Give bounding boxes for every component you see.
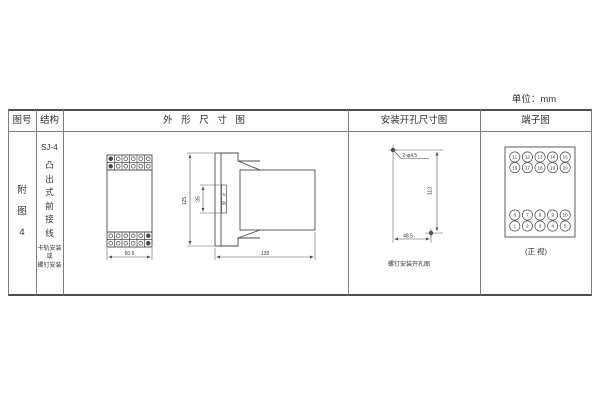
screw-dot	[146, 241, 150, 245]
terminal-number: 17	[525, 165, 531, 170]
screw-dot	[109, 164, 113, 168]
terminal-number: 6	[514, 213, 517, 218]
structure-type-char-2: 出	[36, 174, 63, 184]
structure-type-char-3: 式	[36, 187, 63, 197]
structure-type-char-4: 前	[36, 201, 63, 211]
terminal-number: 16	[512, 165, 518, 170]
terminal-number: 20	[563, 165, 569, 170]
side-top-step	[221, 153, 260, 161]
front-body	[107, 170, 152, 232]
terminal-number: 10	[563, 213, 569, 218]
rail-label-char-2: 轨	[222, 200, 226, 206]
col-header-terminal: 端子图	[480, 110, 591, 131]
front-width-dim: 60.5	[125, 251, 135, 257]
front-view: 60.5	[107, 155, 152, 260]
col-header-outline: 外 形 尺 寸 图	[63, 110, 348, 131]
rail-dim: 35	[196, 196, 202, 202]
side-bottom-step	[221, 238, 260, 246]
col-header-structure: 结构	[36, 110, 63, 131]
mounting-caption: 螺钉安装开孔图	[388, 260, 430, 268]
terminal-number: 14	[550, 155, 556, 160]
side-depth-dim: 128	[261, 251, 270, 257]
terminal-number: 2	[526, 224, 529, 229]
screw-dot	[146, 234, 150, 238]
side-top-diagonal	[238, 161, 260, 170]
strip-grid-lines	[107, 155, 152, 247]
unit-label: 单位：mm	[496, 91, 572, 105]
terminal-row-16-20: 16 17 18 19 20	[510, 163, 571, 173]
col-header-figure-no: 图号	[8, 110, 36, 131]
structure-model: SJ-4	[36, 143, 63, 153]
side-height-dim: 125	[182, 197, 188, 206]
terminal-number: 1	[514, 224, 517, 229]
terminal-number: 13	[537, 155, 543, 160]
mount-note-line-3: 螺钉安装	[36, 263, 63, 271]
structure-type-char-1: 凸	[36, 160, 63, 170]
terminal-number: 5	[564, 224, 567, 229]
col-header-mounting: 安装开孔尺寸图	[348, 110, 480, 131]
rail-label-char-1: 卡	[222, 191, 226, 197]
horizontal-dim: 48.5	[403, 234, 413, 240]
terminal-number: 8	[539, 213, 542, 218]
side-bottom-diagonal	[238, 230, 260, 238]
structure-type-char-6: 线	[36, 228, 63, 238]
terminal-number: 19	[550, 165, 556, 170]
side-view: 125 卡 轨 35 128	[182, 153, 315, 260]
side-front-flange	[215, 153, 221, 246]
technical-drawing-page: 单位：mm 图号 结构 外 形 尺 寸 图 安装开孔尺寸图 端子图 附 图 4 …	[0, 0, 600, 400]
din-rail-section	[222, 185, 227, 213]
terminal-row-1-5: 1 2 3 4 5	[510, 221, 571, 231]
mount-note-line-2: 或	[36, 254, 63, 262]
terminal-number: 3	[539, 224, 542, 229]
hole-bottom-cross	[425, 229, 443, 238]
terminal-number: 11	[512, 155, 517, 160]
figure-no-char-3: 4	[8, 227, 36, 238]
outline-drawing: 60.5 125 卡 轨 35 128	[63, 131, 348, 295]
terminal-row-11-15: 11 12 13 14 15	[510, 152, 571, 162]
terminal-row-6-10: 6 7 8 9 10	[510, 210, 571, 220]
hole-spec-label: 2-φ4.5	[403, 153, 418, 159]
terminal-caption: (正 视)	[525, 246, 548, 256]
terminal-number: 7	[526, 213, 529, 218]
mounting-hole-drawing: 2-φ4.5 113 48.5 螺钉安装开孔图	[348, 131, 480, 295]
terminal-number: 4	[551, 224, 554, 229]
screw-dot	[109, 157, 113, 161]
figure-no-char-1: 附	[8, 185, 36, 196]
mount-note-line-1: 卡轨安装	[36, 246, 63, 254]
structure-type-char-5: 接	[36, 214, 63, 224]
terminal-number: 15	[563, 155, 569, 160]
side-body	[240, 170, 315, 230]
vertical-dim: 113	[428, 187, 434, 195]
terminal-number: 18	[537, 165, 543, 170]
terminal-number: 9	[551, 213, 554, 218]
terminal-number: 12	[525, 155, 531, 160]
table-left-border	[8, 110, 9, 295]
terminal-diagram: 11 12 13 14 15 16 17 18 19 20 6 7	[480, 131, 592, 295]
figure-no-char-2: 图	[8, 206, 36, 217]
